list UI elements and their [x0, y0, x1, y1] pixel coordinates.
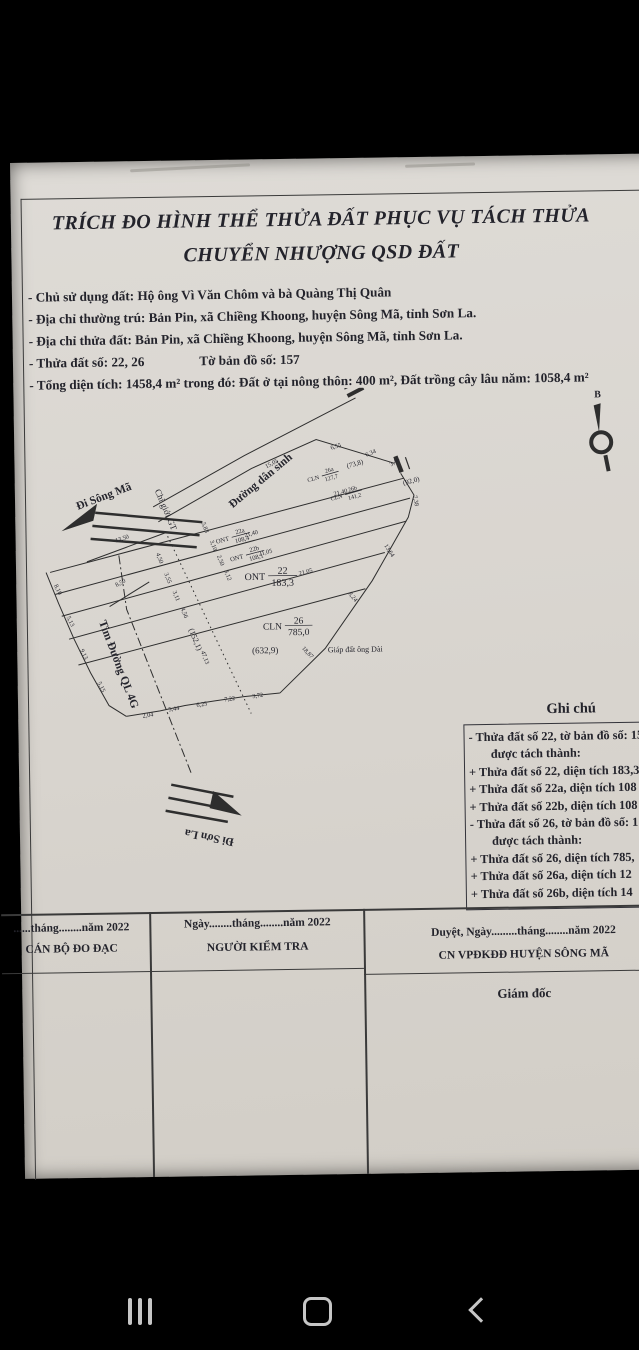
parcel-fraction: ONT22b108,1 [228, 544, 266, 568]
dimension-label: 3,72 [252, 692, 264, 701]
svg-text:183,3: 183,3 [271, 578, 294, 589]
map-label: (73,8) [346, 458, 365, 470]
dimension-label: 8,24 [347, 591, 359, 604]
dimension-label: 18,87 [300, 645, 315, 660]
map-label: Tim Đường QL 4G [96, 619, 140, 710]
svg-text:CLN: CLN [263, 622, 282, 632]
dimension-label: 4,50 [154, 552, 164, 565]
dimension-label: 3,55 [162, 572, 172, 585]
owner-info-block: - Chủ sử dụng đất: Hộ ông Vì Văn Chôm và… [28, 277, 639, 397]
handwriting-mark [130, 163, 250, 172]
dimension-label: 2,04 [142, 711, 154, 720]
dimension-label: 3,12 [222, 569, 232, 582]
dimension-label: 8,10 [52, 583, 63, 596]
notes-box: - Thửa đất số 22, tờ bản đồ số: 15được t… [463, 721, 639, 910]
note-line: + Thửa đất số 22a, diện tích 108 [469, 778, 639, 799]
parcel-fraction: ONT22183,3 [244, 566, 297, 590]
road-to-son-la-icon [165, 784, 242, 823]
parcel-fraction: CLN26b141,2 [329, 484, 364, 506]
map-label: (632,9) [252, 645, 278, 655]
north-arrow-icon [591, 403, 612, 471]
home-icon[interactable] [303, 1297, 332, 1326]
svg-text:141,2: 141,2 [348, 493, 363, 502]
svg-text:ONT: ONT [245, 572, 266, 583]
parcel-fraction: CLN26a127,7 [306, 466, 341, 488]
dimension-label: 6,25 [196, 700, 208, 709]
dimension-label: 7,22 [224, 695, 236, 704]
map-label: Đi Sơn La [184, 826, 235, 847]
svg-text:127,7: 127,7 [324, 474, 339, 483]
dimension-label: 7,38 [411, 495, 420, 507]
svg-text:CLN: CLN [330, 493, 344, 502]
dimension-label: 3,11 [171, 590, 181, 602]
dimension-label: 8,50 [114, 577, 127, 588]
notes-heading: Ghi chú [463, 699, 639, 719]
note-line: - Thửa đất số 22, tờ bản đồ số: 15 [468, 726, 639, 747]
dimension-label: 9,13 [78, 648, 89, 661]
map-label: (152,1) [187, 627, 204, 652]
dimension-label: 21,05 [298, 567, 313, 577]
phone-screen: { "colors":{"paper":"#d9d5cf","ink":"#23… [0, 0, 639, 1350]
map-label: Đi Sông Mã [75, 481, 134, 513]
back-icon[interactable] [468, 1297, 493, 1322]
note-line: + Thửa đất số 26b, diện tích 14 [471, 883, 639, 904]
dimension-label: 5,15 [96, 681, 107, 694]
svg-text:785,0: 785,0 [288, 628, 310, 638]
dimension-label: 2,50 [215, 554, 225, 567]
parcel-fraction: CLN26785,0 [263, 616, 313, 638]
handwriting-mark [405, 162, 475, 167]
android-nav-bar [0, 1282, 639, 1342]
svg-text:ONT: ONT [215, 536, 230, 546]
map-label: Giáp đất ông Dài [328, 645, 384, 655]
dimension-label: 13,64 [382, 543, 395, 558]
recents-icon[interactable] [128, 1298, 152, 1325]
dimension-label: 4,56 [179, 607, 189, 620]
dimension-label: 5,13 [65, 615, 76, 628]
map-label: (92,0) [402, 475, 421, 487]
dimension-label: 6,55 [330, 442, 342, 452]
svg-text:ONT: ONT [229, 553, 244, 563]
dimension-label: 5,44 [168, 705, 180, 714]
road-centerline-ql4g [119, 554, 192, 776]
map-label: B [594, 389, 601, 400]
dimension-label: 47,13 [199, 650, 210, 666]
note-line: - Thửa đất số 26, tờ bản đồ số: 1 [470, 813, 639, 834]
svg-text:CLN: CLN [307, 475, 321, 484]
note-line: + Thửa đất số 26a, diện tích 12 [471, 865, 639, 886]
document-photo: TRÍCH ĐO HÌNH THỂ THỬA ĐẤT PHỤC VỤ TÁCH … [10, 153, 639, 1179]
